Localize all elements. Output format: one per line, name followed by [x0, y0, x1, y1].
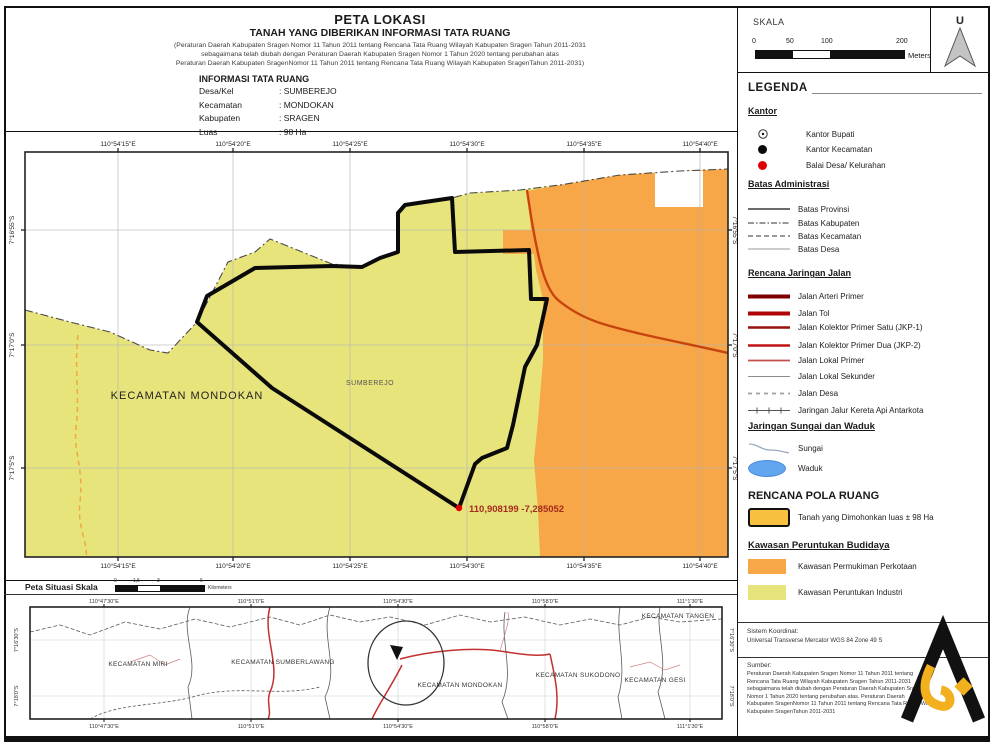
batas-desa-icon: [748, 246, 790, 252]
legend-item-sungai: Sungai: [748, 441, 823, 455]
point-label: 110,908199 -7,285052: [469, 504, 564, 515]
legend-item-batas-kabupaten: Batas Kabupaten: [748, 216, 859, 230]
legend-jalan-heading: Rencana Jaringan Jalan: [748, 268, 851, 278]
info-header: INFORMASI TATA RUANG: [199, 74, 309, 84]
situasi-kecamatan-label: KECAMATAN MONDOKAN: [418, 682, 503, 689]
legend-label: Kantor Bupati: [806, 130, 854, 139]
map-x-label: 110°54'25"E: [332, 140, 368, 148]
map-y-label: 7°17'5"S: [8, 455, 16, 481]
legend-item-kereta-api: Jaringan Jalur Kereta Api Antarkota: [748, 403, 923, 417]
scale-tick-200: 200: [896, 38, 908, 45]
scale-tick-0: 0: [752, 38, 756, 45]
situasi-x-label: 110°51'0"E: [238, 724, 265, 730]
info-row-kabupaten: Kabupaten : SRAGEN: [199, 112, 337, 126]
kantor-bupati-icon: [756, 128, 770, 140]
map-y-label: 7°16'55"S: [8, 215, 16, 244]
situasi-kecamatan-label: KECAMATAN MIRI: [108, 661, 167, 668]
legend-item-batas-desa: Batas Desa: [748, 242, 839, 256]
legend-label: Kawasan Peruntukan Industri: [798, 588, 903, 597]
situasi-kecamatan-label: KECAMATAN SUKODONO: [536, 672, 621, 679]
legend-item-batas-kecamatan: Batas Kecamatan: [748, 229, 861, 243]
scale-bar: [755, 50, 905, 59]
legend-label: Jalan Tol: [798, 309, 829, 318]
north-arrow-icon: [945, 28, 975, 66]
map-sheet: PETA LOKASI TANAH YANG DIBERIKAN INFORMA…: [0, 0, 1000, 750]
jalan-tol-icon: [748, 310, 790, 317]
legend-item-jkp1: Jalan Kolektor Primer Satu (JKP-1): [748, 320, 923, 334]
info-label: Kecamatan: [199, 99, 279, 113]
legend-label: Jalan Lokal Sekunder: [798, 372, 875, 381]
legend-label: Balai Desa/ Kelurahan: [806, 161, 886, 170]
legend-label: Tanah yang Dimohonkan luas ± 98 Ha: [798, 513, 934, 522]
north-label: U: [956, 15, 964, 27]
situasi-x-label: 110°47'30"E: [89, 724, 119, 730]
map-x-label: 110°54'20"E: [215, 562, 251, 570]
legend-item-jalan-tol: Jalan Tol: [748, 306, 829, 320]
kantor-kecamatan-icon: [758, 145, 767, 154]
scalebox-divider: [737, 72, 988, 73]
waduk-icon: [748, 460, 786, 477]
situasi-scale-tick-0: 0: [114, 578, 117, 584]
situasi-kecamatan-label: KECAMATAN SUMBERLAWANG: [231, 659, 334, 666]
jkp1-icon: [748, 324, 790, 331]
industri-swatch: [748, 585, 786, 600]
scale-tick-100: 100: [821, 38, 833, 45]
sumber-label: Sumber:: [747, 662, 772, 669]
legend-label: Jalan Kolektor Primer Satu (JKP-1): [798, 323, 923, 332]
legend-label: Kawasan Permukiman Perkotaan: [798, 562, 917, 571]
legend-item-jkp2: Jalan Kolektor Primer Dua (JKP-2): [748, 338, 921, 352]
legend-item-jalan-desa: Jalan Desa: [748, 386, 838, 400]
legend-batas-heading: Batas Administrasi: [748, 179, 829, 189]
info-value: : SRAGEN: [279, 112, 320, 126]
legend-label: Jalan Arteri Primer: [798, 292, 864, 301]
legend-item-tanah-dimohonkan: Tanah yang Dimohonkan luas ± 98 Ha: [748, 507, 934, 527]
main-map: 110°54'15"E 110°54'20"E 110°54'25"E 110°…: [4, 131, 737, 580]
legend-label: Batas Desa: [798, 245, 839, 254]
info-value: : MONDOKAN: [279, 99, 334, 113]
kereta-api-icon: [748, 406, 790, 415]
regulation-line-2: sebagaimana telah diubah dengan Peratura…: [40, 50, 720, 59]
situasi-kecamatan-label: KECAMATAN GESI: [624, 677, 685, 684]
situasi-x-label: 111°1'30"E: [677, 724, 704, 730]
jalan-lokal-sekunder-icon: [748, 373, 790, 380]
map-x-label: 110°54'35"E: [566, 562, 602, 570]
jkp2-icon: [748, 342, 790, 349]
scale-bar-seg2: [793, 51, 830, 58]
organization-logo: [893, 612, 993, 730]
permukiman-swatch: [748, 559, 786, 574]
legend-budidaya-heading: Kawasan Peruntukan Budidaya: [748, 540, 889, 551]
situasi-scale-unit: Kilometers: [208, 585, 232, 591]
scale-bar-seg1: [756, 51, 793, 58]
map-x-label: 110°54'15"E: [100, 562, 136, 570]
legend-item-permukiman: Kawasan Permukiman Perkotaan: [748, 558, 917, 575]
map-x-label: 110°54'30"E: [449, 562, 485, 570]
situasi-scale-tick-3: 6: [200, 578, 203, 584]
legend-label: Batas Kecamatan: [798, 232, 861, 241]
situasi-x-label: 110°54'30"E: [383, 724, 413, 730]
situasi-y-label: 7°18'0"S: [14, 685, 20, 706]
situasi-y-label: 7°16'30"S: [14, 628, 20, 652]
koordinat-label: Sistem Koordinat:: [747, 628, 798, 635]
map-x-label: 110°54'30"E: [449, 140, 485, 148]
map-y-label: 7°17'0"S: [8, 332, 16, 358]
map-x-label: 110°54'35"E: [566, 140, 602, 148]
legend-item-jalan-arteri: Jalan Arteri Primer: [748, 289, 864, 303]
legend-item-kantor-kecamatan: Kantor Kecamatan: [756, 142, 872, 156]
info-row-desa: Desa/Kel : SUMBEREJO: [199, 85, 337, 99]
legend-label: Batas Kabupaten: [798, 219, 859, 228]
legend-label: Sungai: [798, 444, 823, 453]
info-value: : SUMBEREJO: [279, 85, 337, 99]
situasi-scale-tick-2: 3: [157, 578, 160, 584]
legend-label: Waduk: [798, 464, 823, 473]
legend-label: Jalan Lokal Primer: [798, 356, 864, 365]
legend-label: Kantor Kecamatan: [806, 145, 872, 154]
situasi-scale-seg2: [138, 586, 160, 591]
map-x-label: 110°54'20"E: [215, 140, 251, 148]
map-x-label: 110°54'15"E: [100, 140, 136, 148]
legend-item-waduk: Waduk: [748, 459, 823, 477]
legend-label: Jaringan Jalur Kereta Api Antarkota: [798, 406, 923, 415]
page-title: PETA LOKASI: [60, 12, 700, 27]
jalan-desa-icon: [748, 390, 790, 397]
situasi-scale-tick-1: 1,5: [133, 578, 140, 584]
legend-title-rule: [812, 93, 982, 94]
legend-item-balai-desa: Balai Desa/ Kelurahan: [756, 158, 886, 172]
batas-provinsi-icon: [748, 206, 790, 212]
legend-label: Jalan Kolektor Primer Dua (JKP-2): [798, 341, 921, 350]
situasi-kecamatan-label: KECAMATAN TANGEN: [642, 613, 715, 620]
situasi-header: Peta Situasi Skala: [25, 582, 98, 592]
map-x-label: 110°54'40"E: [682, 562, 718, 570]
jalan-arteri-icon: [748, 293, 790, 300]
white-notch: [655, 171, 703, 207]
sungai-icon: [748, 441, 790, 455]
situasi-y-label: 7°18'0"S: [728, 685, 734, 706]
legend-label: Jalan Desa: [798, 389, 838, 398]
scale-bar-seg3: [830, 51, 904, 58]
legend-label: Batas Provinsi: [798, 205, 849, 214]
situasi-map: 110°47'30"E 110°51'0"E 110°54'30"E 110°5…: [4, 594, 737, 745]
legend-sungai-heading: Jaringan Sungai dan Waduk: [748, 421, 875, 432]
regulation-line-1: (Peraturan Daerah Kabupaten Sragen Nomor…: [40, 41, 720, 50]
koordinat-value: Universal Transverse Mercator WGS 84 Zon…: [747, 637, 882, 645]
legend-item-batas-provinsi: Batas Provinsi: [748, 202, 849, 216]
scale-tick-50: 50: [786, 38, 794, 45]
info-label: Desa/Kel: [199, 85, 279, 99]
desa-label: SUMBEREJO: [346, 380, 394, 387]
batas-kecamatan-icon: [748, 233, 790, 239]
scale-unit: Meters: [908, 51, 931, 60]
north-arrow: U: [930, 6, 990, 72]
legend-item-industri: Kawasan Peruntukan Industri: [748, 584, 903, 601]
info-label: Kabupaten: [199, 112, 279, 126]
situasi-scale-seg3: [160, 586, 204, 591]
situasi-scale-bar: [115, 585, 205, 592]
kecamatan-label: KECAMATAN MONDOKAN: [111, 390, 264, 402]
panel-divider: [737, 6, 738, 738]
legend-item-jalan-lokal-primer: Jalan Lokal Primer: [748, 353, 864, 367]
legend-item-kantor-bupati: Kantor Bupati: [756, 127, 854, 141]
info-row-kecamatan: Kecamatan : MONDOKAN: [199, 99, 337, 113]
tanah-dimohonkan-swatch: [748, 508, 790, 527]
balai-desa-icon: [758, 161, 767, 170]
page-subtitle: TANAH YANG DIBERIKAN INFORMASI TATA RUAN…: [60, 27, 700, 39]
batas-kabupaten-icon: [748, 220, 790, 226]
situasi-y-label: 7°16'30"S: [728, 628, 734, 652]
legend-pola-heading: RENCANA POLA RUANG: [748, 490, 879, 502]
map-x-label: 110°54'40"E: [682, 140, 718, 148]
legend-item-jalan-lokal-sekunder: Jalan Lokal Sekunder: [748, 369, 875, 383]
legend-kantor-heading: Kantor: [748, 106, 777, 116]
legend-title: LEGENDA: [748, 82, 808, 94]
situasi-x-label: 110°58'0"E: [532, 724, 559, 730]
scale-label: SKALA: [753, 17, 785, 27]
jalan-lokal-primer-icon: [748, 357, 790, 364]
map-x-label: 110°54'25"E: [332, 562, 368, 570]
regulation-line-3: Peraturan Daerah Kabupaten SragenNomor 1…: [40, 59, 720, 68]
point-marker: [456, 505, 462, 511]
situasi-scale-seg1: [116, 586, 138, 591]
zone-permukiman: [527, 169, 728, 557]
